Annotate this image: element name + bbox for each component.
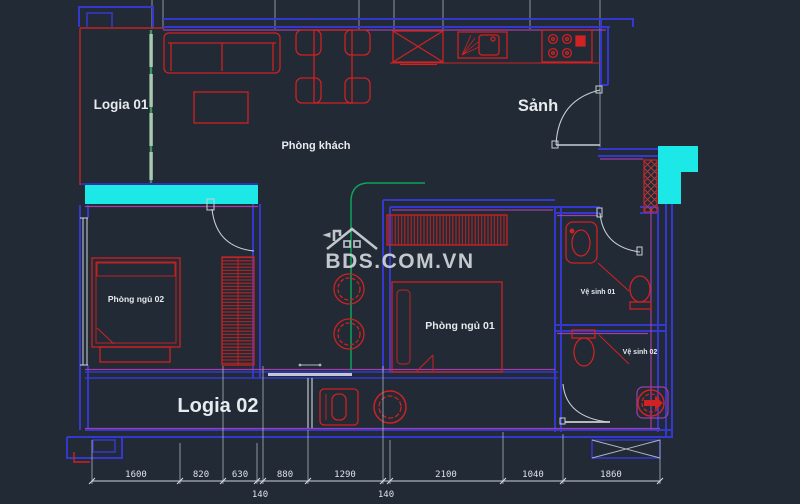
label-bath02: Vệ sinh 02 <box>623 349 658 356</box>
watermark-text: BDS.COM.VN <box>325 250 474 273</box>
dim-630: 630 <box>232 470 248 480</box>
label-bath01: Vệ sinh 01 <box>581 289 616 296</box>
dim-1600: 1600 <box>125 470 147 480</box>
wardrobe-01 <box>387 215 507 245</box>
dim-140-b: 140 <box>378 490 394 500</box>
cad-floorplan-screenshot: 1600 820 630 880 1290 2100 1040 1860 140… <box>0 0 800 504</box>
label-living: Phòng khách <box>281 140 350 152</box>
dim-1290: 1290 <box>334 470 356 480</box>
label-bedroom02: Phòng ngủ 02 <box>108 294 164 304</box>
label-hall: Sảnh <box>518 97 558 115</box>
dim-1860: 1860 <box>600 470 622 480</box>
wardrobe-02 <box>222 257 254 365</box>
label-logia01: Logia 01 <box>94 97 149 112</box>
column-hatched <box>644 160 657 212</box>
floor-plan-canvas: 1600 820 630 880 1290 2100 1040 1860 140… <box>0 0 800 504</box>
dim-820: 820 <box>193 470 209 480</box>
dim-1040: 1040 <box>522 470 544 480</box>
dim-2100: 2100 <box>435 470 457 480</box>
cyan-wall-bar <box>85 185 258 204</box>
label-logia02: Logia 02 <box>177 395 258 417</box>
dim-140-a: 140 <box>252 490 268 500</box>
dim-880: 880 <box>277 470 293 480</box>
label-bedroom01: Phòng ngủ 01 <box>425 320 495 332</box>
